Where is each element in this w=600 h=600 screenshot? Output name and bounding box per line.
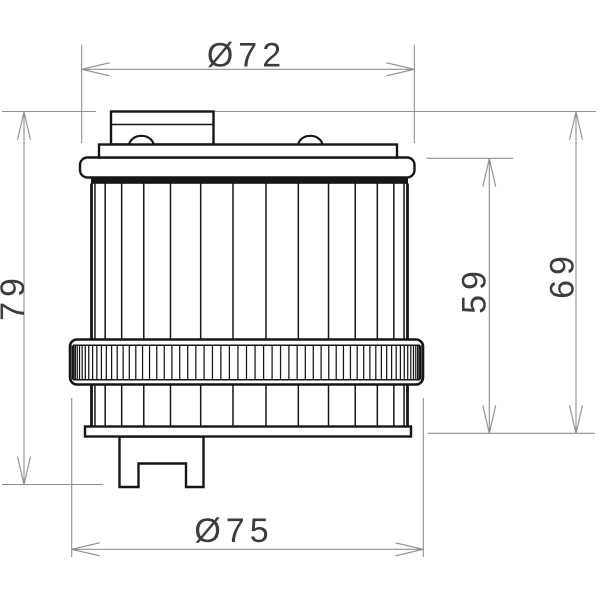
arrowhead-line	[82, 63, 110, 70]
drawing-canvas: Ø72 Ø75 79 59 69	[0, 0, 600, 600]
arrowhead-line	[483, 159, 490, 187]
arrowhead-line	[82, 69, 110, 76]
arrowhead-line	[570, 405, 577, 433]
arrowhead-line	[395, 549, 423, 556]
arrowhead-line	[576, 112, 583, 140]
arrowhead-line	[24, 112, 31, 140]
arrowhead-line	[489, 405, 496, 433]
filter-outline	[70, 112, 423, 488]
arrowhead-line	[24, 457, 31, 485]
arrowhead-line	[18, 112, 25, 140]
bottom-plate	[85, 427, 411, 437]
arrowhead-line	[576, 405, 583, 433]
arrowhead-line	[489, 159, 496, 187]
arrowhead-line	[386, 69, 414, 76]
arrowhead-line	[72, 549, 100, 556]
arrowhead-line	[386, 63, 414, 70]
arrowhead-line	[570, 112, 577, 140]
label-top-diameter: Ø72	[207, 37, 286, 75]
arrowhead-line	[72, 543, 100, 550]
filter-technical-drawing: Ø72 Ø75 79 59 69	[0, 0, 600, 600]
top-plate	[99, 145, 397, 158]
lower-pleats	[92, 385, 408, 427]
dim-arrows	[18, 63, 583, 556]
label-body-height: 59	[456, 266, 494, 314]
upper-pleats	[92, 184, 408, 341]
top-cap-lid	[80, 158, 415, 178]
arrowhead-line	[395, 543, 423, 550]
top-mount-block	[111, 112, 214, 145]
label-bottom-diameter: Ø75	[194, 512, 273, 550]
arrowhead-line	[18, 457, 25, 485]
label-upper-height: 69	[544, 251, 582, 299]
label-overall-height: 79	[0, 273, 32, 321]
lid-shadow-band	[91, 178, 408, 184]
bottom-mount-tab	[120, 437, 204, 488]
arrowhead-line	[483, 405, 490, 433]
